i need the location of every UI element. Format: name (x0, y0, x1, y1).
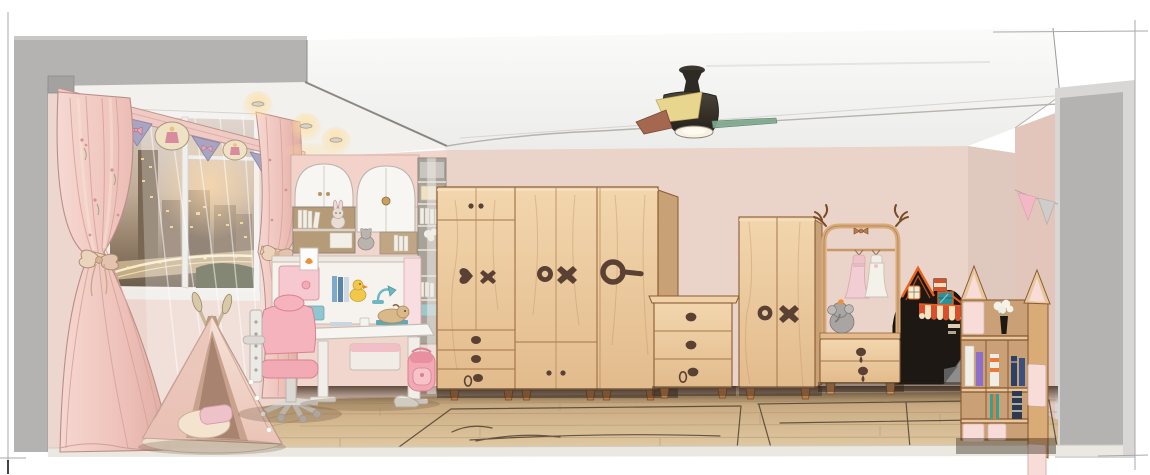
pink-door-panel (988, 424, 1006, 440)
drawer-chest (649, 296, 739, 398)
wardrobe-large (437, 187, 678, 400)
teal-window (938, 292, 953, 305)
hutch-pink-side (404, 258, 421, 328)
picture-frame-fox (300, 248, 318, 270)
bow-ornament (854, 228, 868, 234)
desk-leg-left (318, 341, 328, 399)
chimney-stripes (934, 279, 946, 291)
right-section-wall (1060, 92, 1123, 452)
rack-shelf (820, 333, 900, 339)
chair-headrest (274, 295, 304, 311)
chair-armrest (243, 336, 265, 344)
pink-door-panel (963, 302, 984, 334)
gable-window (908, 286, 920, 299)
desk-drawer (350, 344, 400, 370)
chair-column (286, 378, 296, 402)
backpack (408, 349, 435, 392)
wardrobe-small (739, 217, 822, 399)
kids-bedroom-illustration (0, 0, 1150, 475)
scene-canvas (0, 0, 1150, 475)
brass-knob (382, 197, 390, 205)
downlight (291, 113, 321, 143)
chair-seat (260, 360, 318, 378)
wardrobe-body (437, 187, 658, 390)
elephant-hat (838, 299, 844, 305)
striped-awning (919, 304, 966, 321)
pink-side-panel (1028, 364, 1046, 407)
rack-drawers (820, 339, 900, 383)
hutch-books (332, 276, 349, 302)
downlight (243, 91, 273, 121)
